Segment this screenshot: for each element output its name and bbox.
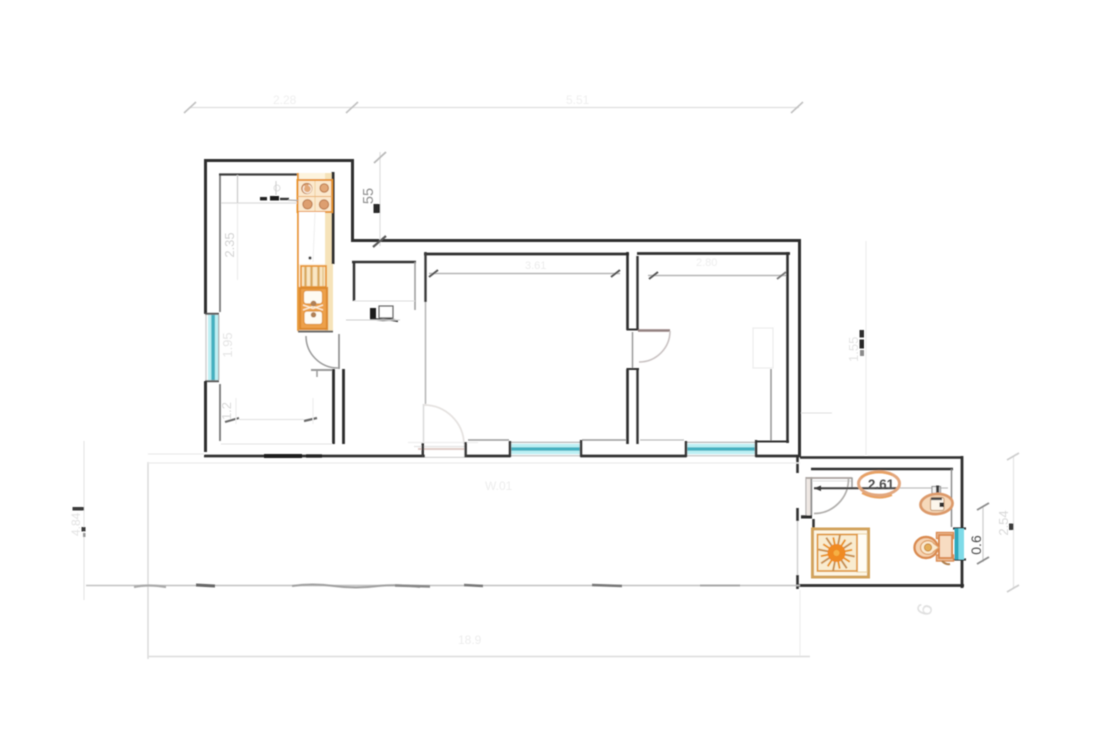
svg-text:18.9: 18.9 [458,633,482,647]
svg-text:1.55: 1.55 [846,337,861,362]
svg-text:5.51: 5.51 [566,93,590,107]
svg-text:2.61: 2.61 [868,477,895,492]
svg-text:1.2: 1.2 [219,402,234,420]
svg-text:0.6: 0.6 [968,535,984,555]
svg-text:2.54: 2.54 [996,510,1011,535]
svg-text:2.35: 2.35 [222,232,237,257]
svg-text:2.28: 2.28 [273,93,297,107]
svg-text:1.95: 1.95 [220,332,235,357]
svg-text:4.84: 4.84 [69,512,83,536]
svg-text:3.61: 3.61 [525,260,546,272]
svg-text:2.80: 2.80 [696,257,717,269]
svg-text:W.01: W.01 [485,479,513,493]
svg-text:55: 55 [361,188,377,204]
